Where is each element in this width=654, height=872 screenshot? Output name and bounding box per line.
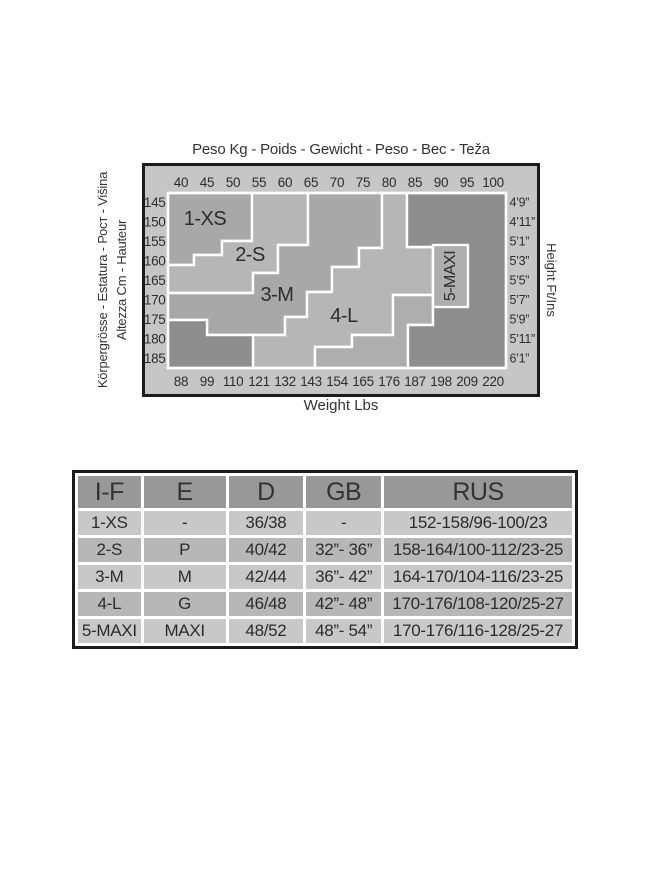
ftins-axis-label: 5’9” xyxy=(510,312,530,326)
cm-axis-label: 175 xyxy=(144,312,166,327)
table-cell: 48/52 xyxy=(229,619,304,643)
kg-axis-label: 85 xyxy=(408,175,422,190)
kg-axis-label: 95 xyxy=(460,175,474,190)
ftins-axis-label: 5’7” xyxy=(510,293,530,307)
ftins-axis-label: 5’5” xyxy=(510,274,530,288)
lbs-axis-label: 154 xyxy=(326,374,348,389)
table-cell: M xyxy=(144,565,226,589)
ftins-axis-label: 5’3” xyxy=(510,254,530,268)
table-body: 1-XS-36/38-152-158/96-100/232-SP40/4232”… xyxy=(78,511,572,643)
ftins-axis-label: 4’11” xyxy=(510,215,536,229)
table-cell: P xyxy=(144,538,226,562)
kg-axis-label: 65 xyxy=(304,175,318,190)
cm-axis-label: 180 xyxy=(144,331,166,346)
table-cell: 40/42 xyxy=(229,538,304,562)
table-cell: 36/38 xyxy=(229,511,304,535)
ftins-axis-label: 5’11” xyxy=(510,332,536,346)
ftins-axis-label: 6’1” xyxy=(510,351,530,365)
table-cell: 4-L xyxy=(78,592,141,616)
size-grid-chart: 1-XS2-S3-M4-L5-MAXI404550556065707580859… xyxy=(142,163,540,397)
table-cell: 2-S xyxy=(78,538,141,562)
lbs-axis-label: 220 xyxy=(482,374,504,389)
lbs-axis-label: 132 xyxy=(274,374,296,389)
lbs-axis-label: 121 xyxy=(248,374,270,389)
height-ftins-axis-title: Height Ft/Ins xyxy=(543,225,559,335)
kg-axis-label: 60 xyxy=(278,175,292,190)
table-cell: 170-176/116-128/25-27 xyxy=(384,619,572,643)
cm-axis-label: 150 xyxy=(144,215,166,230)
table-header-row: I-FEDGBRUS xyxy=(78,476,572,508)
zone-1xs-label: 1-XS xyxy=(184,208,227,230)
table-cell: G xyxy=(144,592,226,616)
weight-kg-title: Peso Kg - Poids - Gewicht - Peso - Вес -… xyxy=(142,141,540,158)
table-row-5-maxi: 5-MAXIMAXI48/5248”- 54”170-176/116-128/2… xyxy=(78,619,572,643)
kg-axis-label: 40 xyxy=(174,175,188,190)
lbs-axis-label: 187 xyxy=(404,374,426,389)
table-cell: 170-176/108-120/25-27 xyxy=(384,592,572,616)
lbs-axis-label: 143 xyxy=(300,374,322,389)
table-row-2-s: 2-SP40/4232”- 36”158-164/100-112/23-25 xyxy=(78,538,572,562)
table-cell: - xyxy=(306,511,381,535)
kg-axis-label: 80 xyxy=(382,175,396,190)
lbs-axis-label: 209 xyxy=(456,374,478,389)
kg-axis-label: 70 xyxy=(330,175,344,190)
size-conversion-table: I-FEDGBRUS 1-XS-36/38-152-158/96-100/232… xyxy=(72,470,578,649)
zone-5maxi-label: 5-MAXI xyxy=(442,251,459,301)
cm-axis-label: 170 xyxy=(144,292,166,307)
height-cm-axis-title-inner: Altezza Cm - Hauteur xyxy=(112,150,131,410)
cm-axis-label: 160 xyxy=(144,254,166,269)
table-cell: 5-MAXI xyxy=(78,619,141,643)
size-chart-page: Peso Kg - Poids - Gewicht - Peso - Вес -… xyxy=(0,0,654,872)
table-cell: 46/48 xyxy=(229,592,304,616)
table-cell: 32”- 36” xyxy=(306,538,381,562)
table-cell: 152-158/96-100/23 xyxy=(384,511,572,535)
weight-lbs-axis-title: Weight Lbs xyxy=(142,397,540,414)
table-cell: 36”- 42” xyxy=(306,565,381,589)
cm-axis-label: 155 xyxy=(144,234,166,249)
table-cell: - xyxy=(144,511,226,535)
table-cell: MAXI xyxy=(144,619,226,643)
kg-axis-label: 90 xyxy=(434,175,448,190)
table-cell: 3-M xyxy=(78,565,141,589)
table-cell: 164-170/104-116/23-25 xyxy=(384,565,572,589)
table-cell: 1-XS xyxy=(78,511,141,535)
table-row-3-m: 3-MM42/4436”- 42”164-170/104-116/23-25 xyxy=(78,565,572,589)
table-row-4-l: 4-LG46/4842”- 48”170-176/108-120/25-27 xyxy=(78,592,572,616)
lbs-axis-label: 165 xyxy=(352,374,374,389)
lbs-axis-label: 198 xyxy=(430,374,452,389)
kg-axis-label: 45 xyxy=(200,175,214,190)
kg-axis-label: 50 xyxy=(226,175,240,190)
zone-4l-label: 4-L xyxy=(330,305,358,327)
table-header-gb: GB xyxy=(306,476,381,508)
lbs-axis-label: 99 xyxy=(200,374,214,389)
size-conversion-table-wrap: I-FEDGBRUS 1-XS-36/38-152-158/96-100/232… xyxy=(72,470,578,649)
height-cm-axis-title: Körpergrösse - Estatura - Рост - Višina … xyxy=(93,150,131,410)
table-cell: 158-164/100-112/23-25 xyxy=(384,538,572,562)
zone-2s-label: 2-S xyxy=(235,244,265,266)
table-header-rus: RUS xyxy=(384,476,572,508)
cm-axis-label: 145 xyxy=(144,195,166,210)
lbs-axis-label: 88 xyxy=(174,374,188,389)
kg-axis-label: 100 xyxy=(482,175,504,190)
lbs-axis-label: 176 xyxy=(378,374,400,389)
kg-axis-label: 55 xyxy=(252,175,266,190)
table-header-d: D xyxy=(229,476,304,508)
table-header-i-f: I-F xyxy=(78,476,141,508)
ftins-axis-label: 5’1” xyxy=(510,235,530,249)
height-cm-axis-title-outer: Körpergrösse - Estatura - Рост - Višina xyxy=(93,150,112,410)
ftins-axis-label: 4’9” xyxy=(510,196,530,210)
cm-axis-label: 185 xyxy=(144,351,166,366)
table-header-e: E xyxy=(144,476,226,508)
table-cell: 48”- 54” xyxy=(306,619,381,643)
table-cell: 42/44 xyxy=(229,565,304,589)
table-row-1-xs: 1-XS-36/38-152-158/96-100/23 xyxy=(78,511,572,535)
kg-axis-label: 75 xyxy=(356,175,370,190)
cm-axis-label: 165 xyxy=(144,273,166,288)
zone-3m-label: 3-M xyxy=(261,284,294,306)
lbs-axis-label: 110 xyxy=(223,374,244,389)
table-cell: 42”- 48” xyxy=(306,592,381,616)
